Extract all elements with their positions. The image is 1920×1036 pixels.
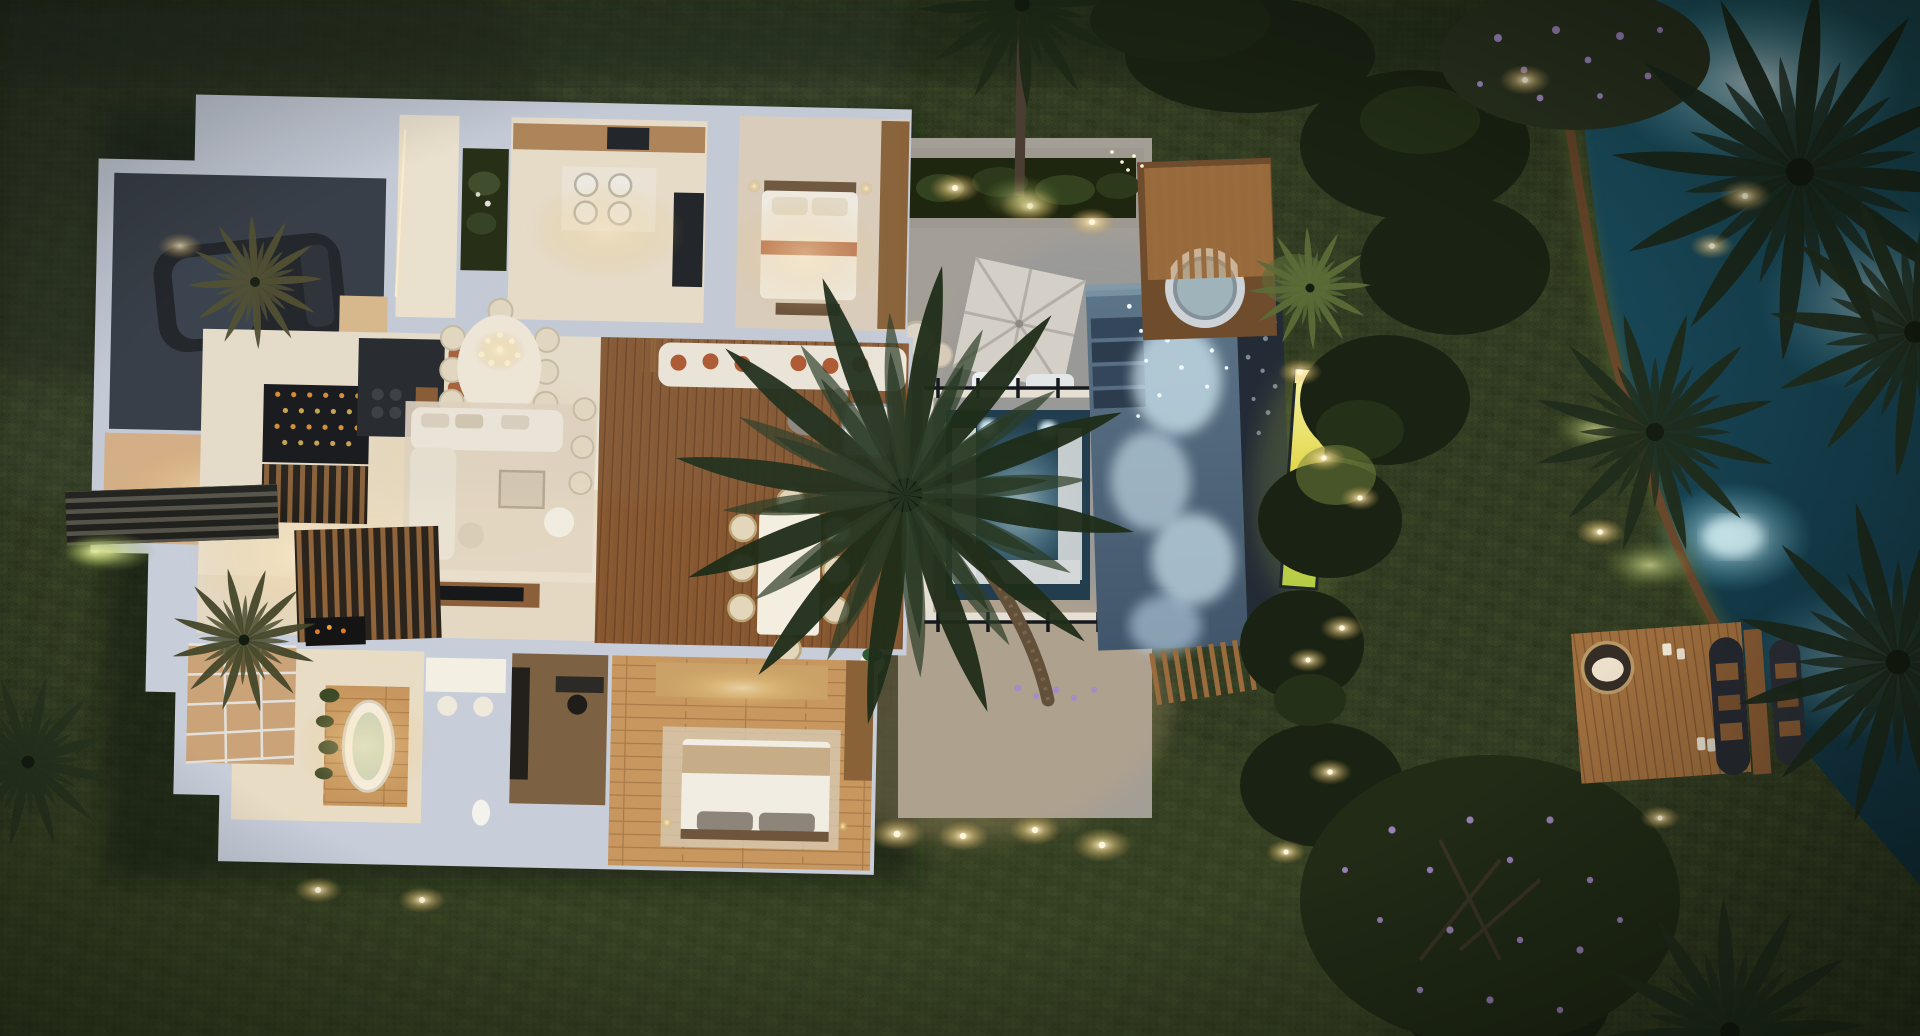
villa-night-render (0, 0, 1920, 1036)
atmosphere (0, 0, 1920, 1036)
scene-canvas (0, 0, 1920, 1036)
dusk-tint (0, 0, 900, 500)
